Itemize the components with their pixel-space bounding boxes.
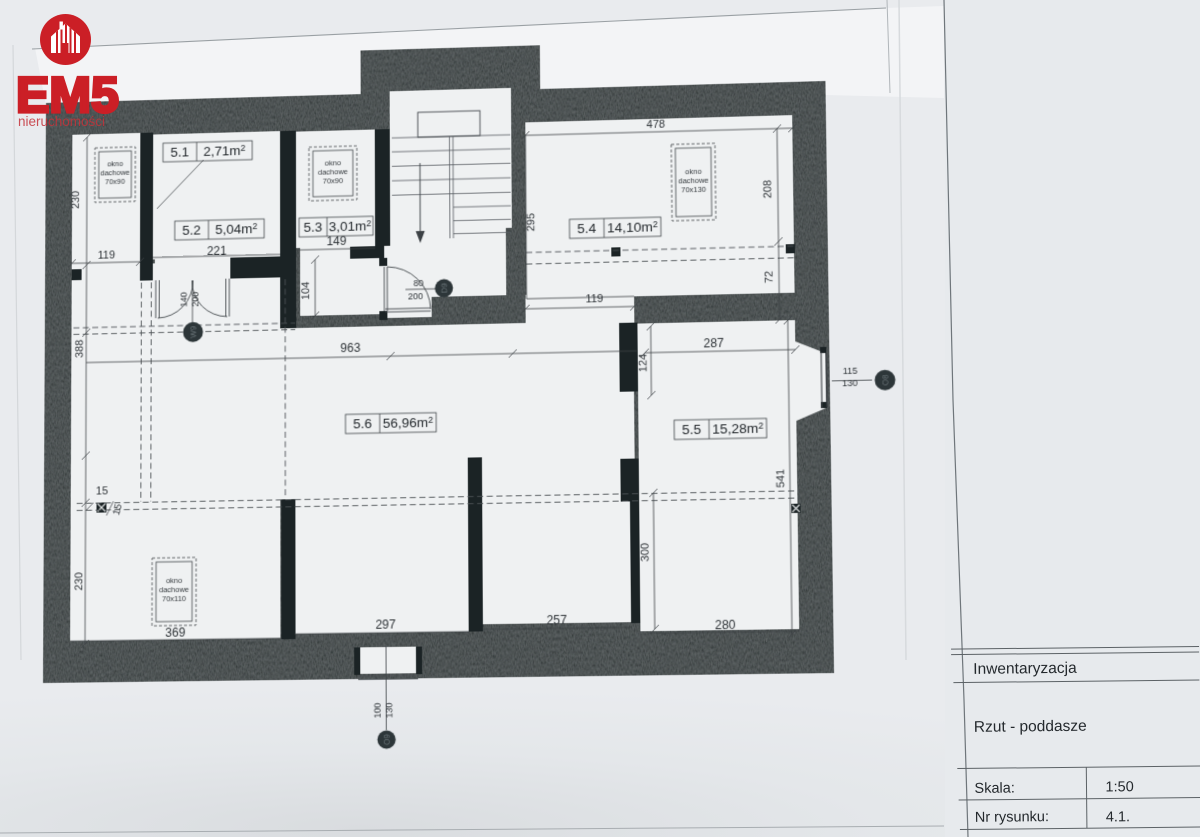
svg-text:4.1.: 4.1. — [1106, 809, 1130, 825]
svg-text:Rzut - poddasze: Rzut - poddasze — [974, 718, 1087, 736]
svg-text:Nr rysunku:: Nr rysunku: — [975, 809, 1049, 826]
svg-text:Skala:: Skala: — [974, 780, 1014, 796]
svg-text:1:50: 1:50 — [1105, 779, 1133, 795]
svg-text:Inwentaryzacja: Inwentaryzacja — [973, 660, 1077, 678]
svg-text:nieruchomości: nieruchomości — [18, 114, 105, 129]
